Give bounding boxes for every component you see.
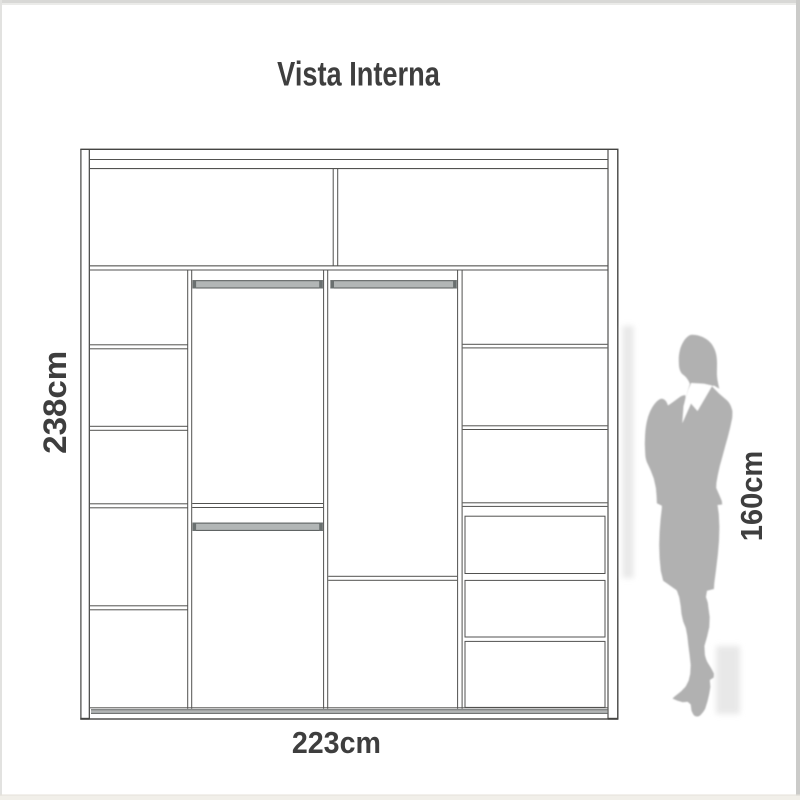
svg-text:223cm: 223cm (292, 726, 381, 760)
svg-text:Vista Interna: Vista Interna (277, 54, 440, 93)
svg-text:160cm: 160cm (735, 451, 769, 542)
svg-text:238cm: 238cm (36, 351, 73, 454)
